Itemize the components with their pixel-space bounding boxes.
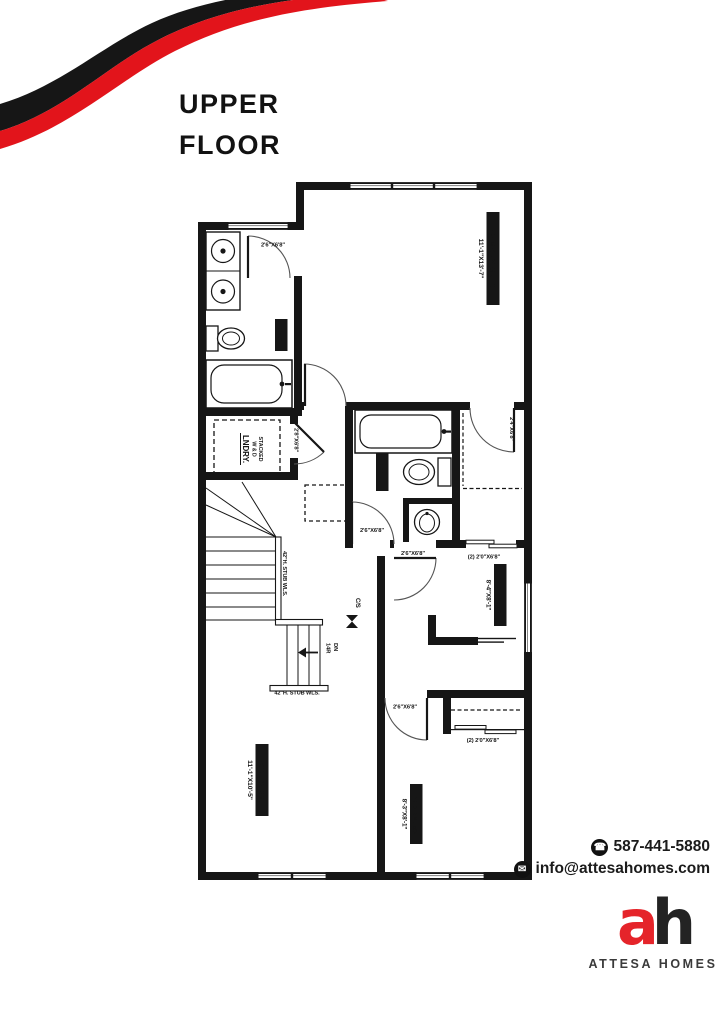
bath-toilet-seat bbox=[409, 464, 429, 480]
wall-ens-east bbox=[294, 276, 302, 408]
window-bed3 bbox=[414, 872, 486, 879]
ens-tub-faucet bbox=[280, 382, 285, 387]
ens-sink-2-drain bbox=[220, 289, 225, 294]
bath-name: BATH. bbox=[377, 461, 386, 483]
wall-primary-south-b bbox=[346, 402, 470, 410]
primary-door-label: 2'6"X6'8" bbox=[295, 363, 301, 387]
wall-primary-south-c bbox=[514, 402, 532, 410]
bath-tub-faucet bbox=[442, 429, 447, 434]
stub-walls-label-horizontal: 42"H. STUB WLS. bbox=[274, 691, 320, 697]
bed2-dims: 8'-4"X8'-1" bbox=[485, 580, 492, 611]
wall-hall-south-b bbox=[436, 540, 466, 548]
logo-monogram-h: h bbox=[652, 886, 689, 959]
window-bed2 bbox=[524, 581, 531, 655]
logo-monogram-a: a bbox=[617, 886, 652, 959]
window-bonus bbox=[256, 872, 328, 879]
contact-phone: 587-441-5880 bbox=[613, 836, 710, 858]
closet-track-bed2-a bbox=[478, 638, 516, 639]
bed2-name: BEDRM. #2 bbox=[495, 575, 504, 615]
laundry-line2: W & D bbox=[251, 441, 257, 457]
cs-text: C/S bbox=[354, 598, 360, 608]
wic-door-label: 2'4"X6'8" bbox=[508, 417, 514, 441]
window-ens bbox=[226, 222, 290, 229]
wall-hall-south-a bbox=[345, 540, 351, 548]
page-title: UPPER FLOOR bbox=[179, 84, 281, 166]
email-icon: ✉ bbox=[514, 861, 531, 878]
laundry-line1: STACKED bbox=[257, 437, 263, 462]
wall-bonus-east bbox=[377, 698, 385, 872]
cs-symbol: C/S bbox=[346, 598, 360, 628]
bypass-door-bed2-b bbox=[489, 544, 517, 548]
bath-tub-spout bbox=[446, 431, 451, 433]
ens-sink-1-drain bbox=[220, 248, 225, 253]
cs-bowtie-icon bbox=[346, 615, 358, 628]
wall-lndry-south bbox=[198, 472, 298, 480]
bath-tub-basin bbox=[360, 415, 441, 448]
ens-tub-basin bbox=[211, 365, 282, 403]
bypass-door-bed3-a bbox=[455, 726, 486, 730]
stairs: DN 14R 42"H. STUB WLS. 42"H. STUB WLS. bbox=[206, 482, 338, 697]
bed3-dims: 8'-3"X8'-1" bbox=[401, 799, 408, 830]
window-primary bbox=[348, 182, 479, 189]
bed2-closet-label: (2) 2'0"X6'8" bbox=[468, 555, 501, 561]
closet-shelving bbox=[451, 413, 522, 710]
stub-wall-jog bbox=[276, 620, 323, 626]
bed3-closet-label: (2) 2'0"X6'8" bbox=[467, 738, 500, 744]
closet-track-bed3 bbox=[451, 729, 524, 730]
door-arc-wic bbox=[470, 408, 514, 452]
bypass-door-bed3-b bbox=[485, 730, 516, 734]
ens-label: ENS. bbox=[275, 319, 288, 351]
ens-door-label: 2'6"X6'8" bbox=[261, 243, 285, 249]
stair-stub-walls bbox=[270, 537, 328, 691]
ens-toilet-seat bbox=[223, 332, 240, 345]
wall-sink-nook-n bbox=[403, 498, 460, 504]
contact-email: info@attesahomes.com bbox=[536, 858, 710, 880]
bath-toilet-tank bbox=[438, 458, 451, 486]
bath-sink-faucet bbox=[425, 512, 428, 515]
contact-phone-row: ☎ 587-441-5880 bbox=[514, 836, 710, 858]
brand-logo: ah ATTESA HOMES bbox=[585, 890, 721, 971]
stub-wall-upper bbox=[276, 537, 282, 621]
wall-bed3-closet-w bbox=[443, 698, 451, 734]
bed2-door-label: 2'6"X6'8" bbox=[401, 551, 425, 557]
wall-right bbox=[524, 182, 532, 880]
wall-bath-east bbox=[452, 406, 460, 542]
door-arc-bed2 bbox=[394, 558, 436, 600]
wall-bed2-west bbox=[377, 556, 385, 698]
dn-arrow-head bbox=[298, 648, 306, 658]
brand-name: ATTESA HOMES bbox=[585, 957, 721, 971]
wall-primary-south-a bbox=[296, 402, 304, 410]
door-arc-bath bbox=[352, 502, 394, 544]
bed2-label: BEDRM. #2 8'-4"X8'-1" bbox=[485, 564, 507, 626]
wall-tub-south bbox=[198, 408, 302, 416]
wall-sink-nook-w bbox=[403, 498, 409, 542]
dn-label: DN 14R bbox=[325, 643, 339, 654]
contact-email-row: ✉ info@attesahomes.com bbox=[514, 858, 710, 880]
dn-text: DN bbox=[332, 643, 338, 651]
bed3-name: BEDRM. #3 bbox=[411, 794, 420, 834]
closet-track-bed2-b bbox=[466, 641, 504, 642]
laundry-name: LNDRY. bbox=[241, 435, 250, 463]
ens-name: ENS. bbox=[276, 327, 285, 344]
wall-hall-south-c bbox=[516, 540, 532, 548]
laundry-label: STACKED W & D LNDRY. bbox=[241, 433, 264, 465]
bonus-dims: 11'-1"X10'-5" bbox=[246, 760, 253, 800]
wall-bed2-bed3 bbox=[427, 690, 532, 698]
flyer-canvas: DN 14R 42"H. STUB WLS. 42"H. STUB WLS. C… bbox=[0, 0, 724, 1024]
bed3-door-label: 2'6"X6'8" bbox=[393, 705, 417, 711]
bath-label: BATH. bbox=[376, 453, 389, 491]
ens-toilet-tank bbox=[206, 326, 218, 351]
laundry-door-label: 2'8"X6'8" bbox=[293, 428, 299, 452]
page-title-line2: FLOOR bbox=[179, 125, 281, 166]
primary-suite-name: PRIMARY SUITE bbox=[488, 227, 497, 290]
primary-suite-label: PRIMARY SUITE 11'-1"X13'-7" bbox=[477, 212, 500, 305]
bath-door-label: 2'6"X6'8" bbox=[360, 528, 384, 534]
bed3-label: BEDRM. #3 8'-3"X8'-1" bbox=[401, 784, 423, 844]
wall-left bbox=[198, 222, 206, 880]
page-title-line1: UPPER bbox=[179, 84, 281, 125]
chase-dashed-box bbox=[305, 485, 347, 521]
ens-tub-spout bbox=[285, 383, 291, 385]
logo-monogram: ah bbox=[585, 890, 721, 956]
door-arc-primary bbox=[304, 364, 346, 406]
fixtures bbox=[206, 232, 452, 535]
risers-text: 14R bbox=[325, 643, 331, 654]
stub-walls-label-vertical: 42"H. STUB WLS. bbox=[281, 551, 287, 597]
phone-icon: ☎ bbox=[591, 839, 608, 856]
contact-block: ☎ 587-441-5880 ✉ info@attesahomes.com bbox=[514, 836, 710, 880]
wall-bed2-stub-h bbox=[428, 637, 478, 645]
stub-walls-text-v: 42"H. STUB WLS. bbox=[281, 551, 287, 597]
bath-sink-basin bbox=[420, 514, 435, 532]
primary-suite-dims: 11'-1"X13'-7" bbox=[477, 239, 484, 279]
bonus-label: BONUS RM. 11'-1"X10'-5" bbox=[246, 744, 269, 816]
bypass-door-bed2-a bbox=[466, 540, 494, 544]
bonus-name: BONUS RM. bbox=[257, 757, 266, 803]
door-arc-laundry bbox=[294, 452, 324, 464]
